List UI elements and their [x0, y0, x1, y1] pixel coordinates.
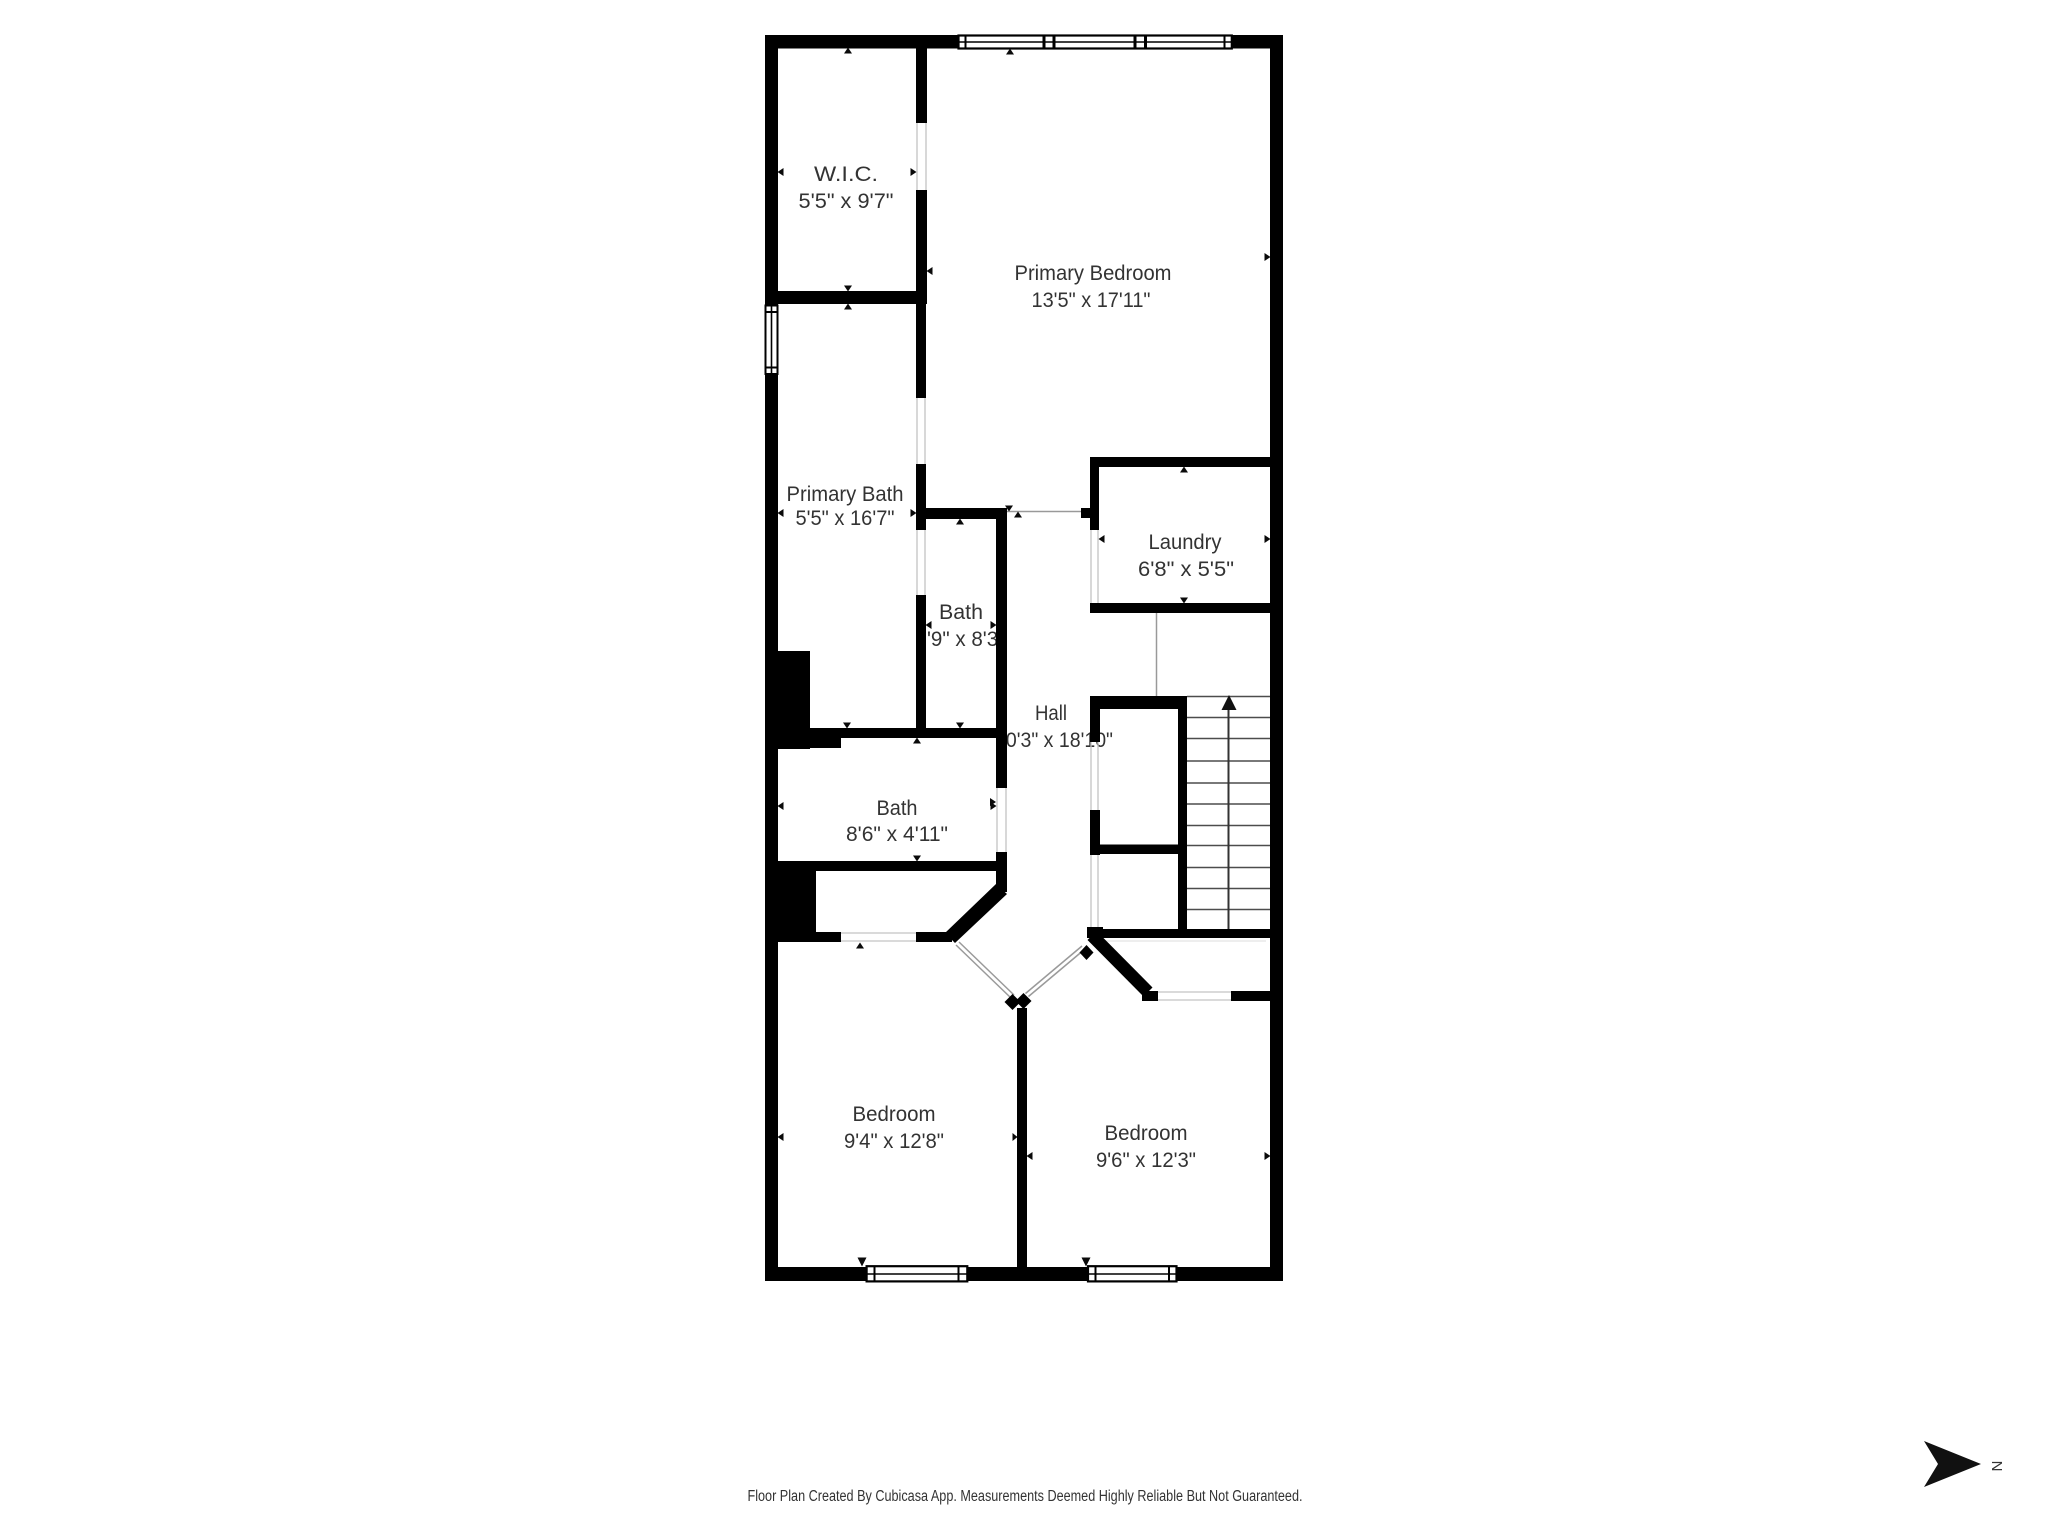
svg-text:Bedroom: Bedroom [1105, 1122, 1188, 1145]
svg-text:6'8" x 5'5": 6'8" x 5'5" [1138, 558, 1234, 581]
svg-text:9'6" x 12'3": 9'6" x 12'3" [1096, 1149, 1196, 1172]
svg-text:13'5" x 17'11": 13'5" x 17'11" [1032, 289, 1151, 312]
svg-text:Bath: Bath [939, 601, 983, 624]
svg-text:Laundry: Laundry [1149, 531, 1222, 554]
svg-text:Floor Plan Created By Cubicasa: Floor Plan Created By Cubicasa App. Meas… [748, 1488, 1303, 1505]
svg-text:9'4" x 12'8": 9'4" x 12'8" [844, 1130, 944, 1153]
svg-text:W.I.C.: W.I.C. [814, 163, 878, 186]
svg-text:Bedroom: Bedroom [853, 1103, 936, 1126]
svg-text:5'5" x 16'7": 5'5" x 16'7" [796, 507, 895, 530]
svg-text:5'5" x 9'7": 5'5" x 9'7" [799, 190, 894, 213]
svg-text:Primary Bath: Primary Bath [787, 483, 904, 506]
svg-text:Bath: Bath [877, 797, 918, 820]
svg-text:N: N [1988, 1461, 2005, 1472]
svg-text:8'6" x 4'11": 8'6" x 4'11" [846, 823, 948, 846]
svg-text:Hall: Hall [1035, 702, 1067, 725]
svg-text:Primary Bedroom: Primary Bedroom [1015, 262, 1172, 285]
svg-text:2'9" x 8'3": 2'9" x 8'3" [916, 628, 1006, 651]
